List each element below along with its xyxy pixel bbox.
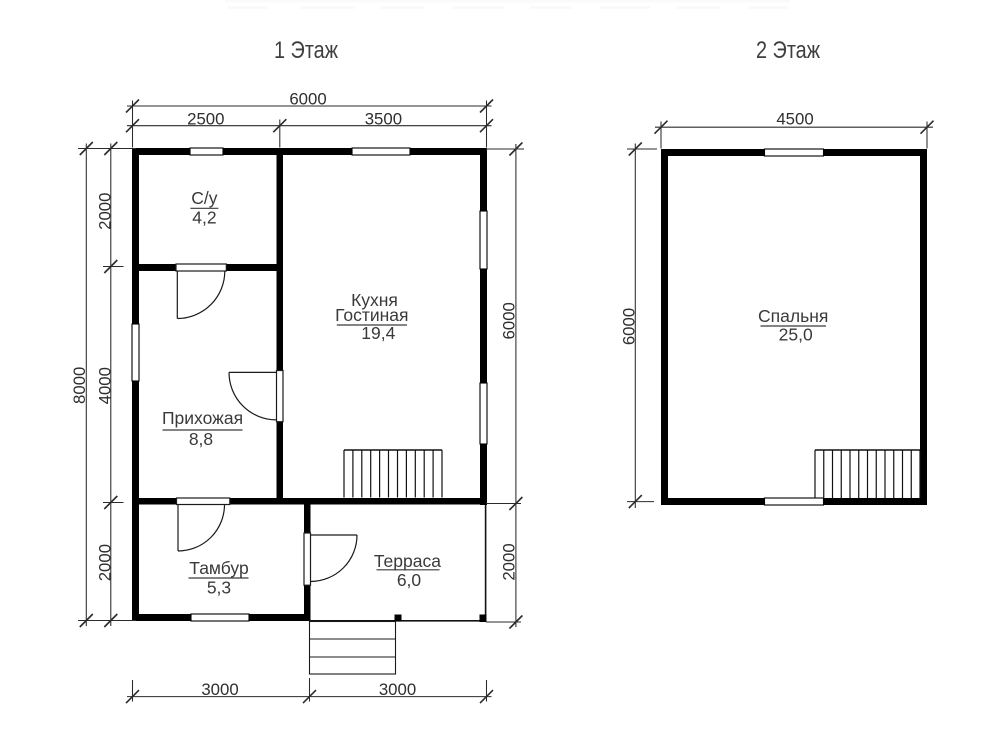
- svg-text:3000: 3000: [201, 680, 238, 699]
- svg-text:Прихожая: Прихожая: [162, 408, 243, 428]
- svg-text:3000: 3000: [379, 680, 416, 699]
- svg-text:2000: 2000: [95, 193, 114, 230]
- svg-text:8000: 8000: [70, 367, 89, 404]
- svg-text:4,2: 4,2: [192, 207, 216, 227]
- svg-text:4500: 4500: [776, 109, 813, 128]
- svg-text:3500: 3500: [365, 110, 402, 129]
- svg-text:6000: 6000: [619, 308, 638, 345]
- svg-text:2000: 2000: [499, 543, 518, 580]
- svg-text:Спальня: Спальня: [758, 306, 828, 326]
- svg-text:6,0: 6,0: [397, 570, 422, 590]
- svg-text:2500: 2500: [187, 110, 224, 129]
- svg-text:5,3: 5,3: [207, 578, 231, 598]
- svg-text:6000: 6000: [499, 302, 518, 339]
- svg-text:2000: 2000: [95, 544, 114, 581]
- svg-text:Гостиная: Гостиная: [335, 305, 408, 325]
- svg-text:8,8: 8,8: [189, 429, 213, 449]
- svg-text:Тамбур: Тамбур: [189, 558, 248, 578]
- svg-text:С/у: С/у: [191, 188, 218, 208]
- svg-text:1 Этаж: 1 Этаж: [274, 37, 338, 64]
- svg-text:19,4: 19,4: [361, 323, 395, 343]
- svg-text:Терраса: Терраса: [374, 551, 441, 571]
- svg-text:2 Этаж: 2 Этаж: [756, 37, 820, 64]
- svg-text:6000: 6000: [289, 89, 326, 108]
- svg-text:4000: 4000: [95, 367, 114, 404]
- svg-text:25,0: 25,0: [779, 324, 813, 344]
